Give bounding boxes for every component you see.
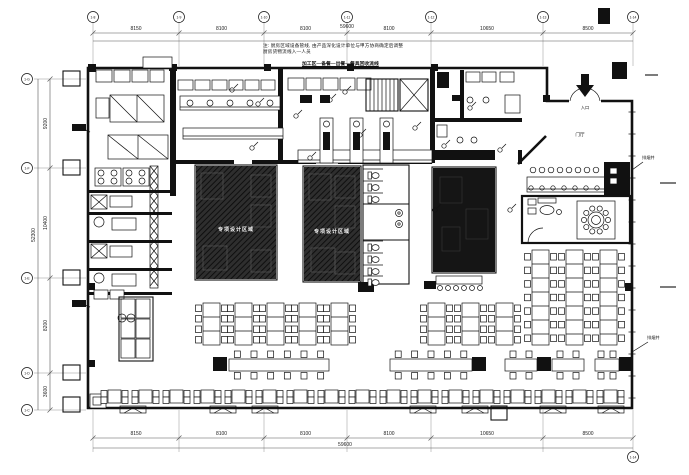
chair bbox=[234, 373, 240, 380]
chair bbox=[194, 391, 200, 398]
chair bbox=[463, 397, 469, 404]
special-room-fill bbox=[433, 168, 495, 272]
fixture-circle bbox=[467, 97, 473, 103]
equipment-box bbox=[340, 78, 355, 90]
grid-bubble-label: 1-10 bbox=[261, 15, 268, 19]
chair bbox=[566, 397, 572, 404]
chair bbox=[473, 397, 479, 404]
dining-table bbox=[267, 303, 284, 345]
square-table bbox=[480, 390, 493, 403]
dim-bottom: 8150 bbox=[130, 431, 141, 437]
chair bbox=[557, 351, 563, 358]
dim-top-total: 59600 bbox=[340, 24, 354, 30]
callout-leader bbox=[512, 204, 516, 208]
chair bbox=[421, 305, 427, 312]
chair bbox=[370, 397, 376, 404]
grid-bubble-label: 1-E bbox=[24, 276, 30, 280]
equipment-callout bbox=[468, 106, 472, 110]
chair bbox=[401, 397, 407, 404]
note-line-2: 厨房货物流线入—人员 bbox=[263, 49, 413, 55]
equipment-callout bbox=[413, 126, 417, 130]
pickup-stool bbox=[446, 286, 451, 291]
equipment-box bbox=[505, 95, 520, 113]
chair bbox=[222, 305, 228, 312]
chair bbox=[504, 397, 510, 404]
shelf-cell bbox=[121, 339, 135, 358]
equipment-box bbox=[96, 98, 109, 118]
pickup-stool bbox=[478, 286, 483, 291]
chair bbox=[481, 326, 487, 333]
chair bbox=[349, 397, 355, 404]
interior-wall bbox=[172, 160, 234, 164]
serving-counter-core bbox=[353, 132, 360, 150]
chair bbox=[412, 373, 418, 380]
dim-bottom: 8100 bbox=[300, 431, 311, 437]
dim-top: 8500 bbox=[582, 26, 593, 32]
chair bbox=[222, 337, 228, 344]
pickup-stool bbox=[462, 286, 467, 291]
chair bbox=[284, 351, 290, 358]
square-table bbox=[449, 390, 462, 403]
chair bbox=[318, 391, 324, 398]
equipment-box bbox=[288, 78, 304, 90]
grid-bubble-label: 1-8 bbox=[91, 15, 96, 19]
serving-counter-core bbox=[383, 132, 390, 150]
bar-stool bbox=[584, 167, 590, 173]
square-table bbox=[294, 390, 307, 403]
chair bbox=[349, 391, 355, 398]
grid-bubble-label: 1-D bbox=[24, 371, 30, 375]
chair bbox=[447, 305, 453, 312]
chair bbox=[228, 316, 234, 323]
chair bbox=[286, 326, 292, 333]
toilet-room bbox=[363, 165, 409, 284]
chair bbox=[598, 373, 604, 380]
dark-equipment bbox=[72, 300, 86, 307]
chair bbox=[557, 373, 563, 380]
entry-label: 入口 bbox=[581, 105, 589, 110]
round-table bbox=[588, 212, 604, 228]
bar-stool bbox=[575, 167, 581, 173]
equipment-box bbox=[96, 70, 112, 82]
table-cap bbox=[619, 357, 633, 371]
callout-leader bbox=[332, 94, 336, 98]
sofa bbox=[538, 198, 556, 203]
chair bbox=[194, 397, 200, 404]
equipment-box bbox=[482, 72, 496, 82]
chair bbox=[308, 397, 314, 404]
chair bbox=[515, 316, 521, 323]
serving-counter-core bbox=[323, 132, 330, 150]
chair bbox=[573, 373, 579, 380]
chair bbox=[559, 254, 565, 260]
chair bbox=[277, 391, 283, 398]
chair bbox=[251, 351, 257, 358]
general-note: 注: 厨房区域设备管线, 由产品深化设计单位与甲方协商确定后调整 厨房货物流线入… bbox=[263, 43, 413, 54]
floor-plan-drawing: 1-81-91-101-111-121-131-1481508100810081… bbox=[0, 0, 689, 475]
chair bbox=[525, 321, 531, 328]
grid-bubble-label: 1-12 bbox=[428, 15, 435, 19]
chair bbox=[619, 281, 625, 288]
chair bbox=[196, 337, 202, 344]
column bbox=[431, 64, 438, 71]
chair bbox=[455, 305, 461, 312]
chair bbox=[184, 391, 190, 398]
chair bbox=[494, 391, 500, 398]
chair bbox=[411, 397, 417, 404]
dim-bottom-total: 59600 bbox=[338, 442, 352, 448]
chair bbox=[525, 391, 531, 398]
bar-stool bbox=[530, 167, 536, 173]
equipment-callout bbox=[294, 114, 298, 118]
callout-leader bbox=[417, 122, 421, 126]
offset-column-box bbox=[63, 160, 80, 175]
dining-table bbox=[235, 303, 252, 345]
callout-leader bbox=[502, 144, 506, 148]
chair bbox=[585, 294, 591, 301]
chair bbox=[153, 397, 159, 404]
chair bbox=[184, 397, 190, 404]
chair bbox=[318, 397, 324, 404]
dim-left: 8200 bbox=[43, 320, 49, 331]
chair bbox=[308, 391, 314, 398]
dim-left-total: 52300 bbox=[31, 228, 37, 242]
sink-drain bbox=[398, 212, 400, 214]
chair bbox=[585, 267, 591, 274]
chair bbox=[350, 326, 356, 333]
room-label-special-b: 专项设计区域 bbox=[303, 228, 361, 235]
chair bbox=[324, 337, 330, 344]
chair bbox=[463, 391, 469, 398]
leader-line bbox=[632, 342, 648, 352]
shelf-cell bbox=[136, 339, 150, 358]
chair bbox=[163, 397, 169, 404]
chair bbox=[585, 254, 591, 260]
bar-stool bbox=[557, 167, 563, 173]
equipment-box bbox=[110, 246, 132, 257]
square-table bbox=[201, 390, 214, 403]
counter bbox=[298, 150, 432, 163]
chair bbox=[535, 391, 541, 398]
equipment-box bbox=[212, 80, 227, 90]
chair bbox=[525, 267, 531, 274]
toilet-bowl bbox=[372, 173, 379, 179]
equipment-box bbox=[323, 78, 338, 90]
round-table-chair bbox=[590, 206, 595, 211]
chair bbox=[122, 397, 128, 404]
chair bbox=[228, 337, 234, 344]
chair bbox=[455, 337, 461, 344]
grid-bubble-label: 1-9 bbox=[177, 15, 182, 19]
round-table-chair bbox=[603, 210, 608, 215]
callout-leader bbox=[472, 102, 476, 106]
dark-equipment bbox=[433, 150, 495, 160]
chair bbox=[292, 337, 298, 344]
dim-bottom: 10650 bbox=[480, 431, 494, 437]
chair bbox=[447, 337, 453, 344]
grid-bubble-label: 1-13 bbox=[540, 15, 547, 19]
chair bbox=[101, 391, 107, 398]
equipment-box bbox=[114, 70, 130, 82]
chair bbox=[287, 391, 293, 398]
equipment-box bbox=[229, 80, 243, 90]
chair bbox=[619, 294, 625, 301]
room-label-entrance-hall: 门厅 bbox=[558, 132, 602, 138]
chair bbox=[525, 294, 531, 301]
square-table bbox=[170, 390, 183, 403]
chair bbox=[566, 391, 572, 398]
chair bbox=[254, 305, 260, 312]
chair bbox=[559, 308, 565, 315]
sink bbox=[396, 221, 403, 228]
chair bbox=[163, 391, 169, 398]
offset-column-box bbox=[63, 71, 80, 86]
chair bbox=[597, 391, 603, 398]
fixture-circle bbox=[457, 137, 463, 143]
chair bbox=[481, 316, 487, 323]
shelf-cell bbox=[136, 299, 150, 318]
chair bbox=[573, 351, 579, 358]
chair bbox=[286, 305, 292, 312]
equipment-box bbox=[195, 80, 210, 90]
chair bbox=[587, 391, 593, 398]
chair bbox=[215, 391, 221, 398]
interior-wall bbox=[170, 68, 176, 196]
dark-equipment bbox=[437, 72, 449, 88]
column bbox=[543, 95, 550, 102]
column bbox=[88, 64, 96, 72]
dim-top: 8100 bbox=[383, 26, 394, 32]
chair bbox=[593, 294, 599, 301]
equipment-box bbox=[466, 72, 480, 82]
chair bbox=[619, 308, 625, 315]
table-cap bbox=[213, 357, 227, 371]
equipment-box bbox=[112, 218, 136, 230]
chair bbox=[132, 391, 138, 398]
chair bbox=[455, 326, 461, 333]
chair bbox=[215, 397, 221, 404]
chair bbox=[619, 254, 625, 260]
equipment-box bbox=[132, 70, 148, 82]
dining-table bbox=[462, 303, 479, 345]
chair bbox=[551, 281, 557, 288]
chair bbox=[339, 397, 345, 404]
dim-left: 10400 bbox=[43, 216, 49, 230]
chair bbox=[556, 391, 562, 398]
toilet-bowl bbox=[372, 185, 379, 191]
dim-top: 8100 bbox=[216, 26, 227, 32]
callout-leader bbox=[446, 140, 450, 144]
chair bbox=[318, 337, 324, 344]
chair bbox=[461, 351, 467, 358]
grid-bubble-label: 1-14 bbox=[630, 15, 637, 19]
callout-leader bbox=[298, 110, 302, 114]
chair bbox=[455, 316, 461, 323]
chair bbox=[556, 397, 562, 404]
toilet bbox=[368, 196, 372, 203]
diagonal-wall bbox=[518, 136, 546, 164]
fixture-circle bbox=[94, 217, 104, 227]
toilet bbox=[368, 244, 372, 251]
chair bbox=[619, 321, 625, 328]
table-cap bbox=[537, 357, 551, 371]
dim-top: 8100 bbox=[300, 26, 311, 32]
side-table bbox=[557, 210, 562, 215]
chair bbox=[619, 335, 625, 342]
chair bbox=[489, 305, 495, 312]
chair bbox=[559, 294, 565, 301]
chair bbox=[559, 281, 565, 288]
chair bbox=[339, 391, 345, 398]
sink-drain bbox=[398, 223, 400, 225]
square-table bbox=[387, 390, 400, 403]
toilet bbox=[368, 279, 372, 286]
round-table-chair bbox=[584, 224, 589, 229]
column bbox=[264, 64, 271, 71]
equipment-box bbox=[178, 80, 193, 90]
interior-wall bbox=[88, 212, 172, 215]
chair bbox=[551, 294, 557, 301]
interior-wall bbox=[430, 118, 522, 122]
dim-top: 10650 bbox=[480, 26, 494, 32]
fixture-circle bbox=[94, 273, 104, 283]
toilet bbox=[368, 184, 372, 191]
grid-bubble-label: 1-C bbox=[24, 408, 30, 412]
round-table-chair bbox=[584, 210, 589, 215]
pickup-stool bbox=[454, 286, 459, 291]
equipment-box bbox=[245, 80, 259, 90]
chair bbox=[350, 305, 356, 312]
chair bbox=[286, 316, 292, 323]
chair bbox=[551, 308, 557, 315]
equipment-callout bbox=[343, 90, 347, 94]
annotation-right-upper: 排烟井 bbox=[642, 154, 655, 161]
chair bbox=[301, 373, 307, 380]
toilet-bowl bbox=[372, 197, 379, 203]
chair bbox=[287, 397, 293, 404]
chair bbox=[411, 391, 417, 398]
chair bbox=[122, 391, 128, 398]
equipment-box bbox=[112, 274, 136, 286]
chair bbox=[461, 373, 467, 380]
chair bbox=[442, 397, 448, 404]
chair bbox=[421, 337, 427, 344]
equipment-callout bbox=[508, 208, 512, 212]
chair bbox=[526, 351, 532, 358]
chair bbox=[380, 397, 386, 404]
toilet-bowl bbox=[372, 245, 379, 251]
chair bbox=[504, 391, 510, 398]
chair bbox=[593, 321, 599, 328]
chair bbox=[587, 397, 593, 404]
chair bbox=[559, 335, 565, 342]
armchair bbox=[528, 208, 536, 214]
equipment-callout bbox=[250, 146, 254, 150]
chair bbox=[286, 337, 292, 344]
grid-bubble-label: 1-G bbox=[24, 77, 30, 81]
callout-leader bbox=[254, 142, 258, 146]
toilet bbox=[368, 256, 372, 263]
chair bbox=[256, 397, 262, 404]
toilet bbox=[368, 268, 372, 275]
chair bbox=[610, 373, 616, 380]
chair bbox=[585, 308, 591, 315]
chair bbox=[268, 351, 274, 358]
counter bbox=[527, 177, 607, 192]
interior-wall bbox=[88, 240, 172, 243]
inset bbox=[610, 168, 617, 174]
chair bbox=[260, 305, 266, 312]
long-table bbox=[552, 359, 584, 371]
square-table bbox=[356, 390, 369, 403]
equipment-box bbox=[93, 397, 101, 405]
chair bbox=[525, 335, 531, 342]
chair bbox=[318, 305, 324, 312]
chair bbox=[593, 254, 599, 260]
square-table bbox=[542, 390, 555, 403]
long-table bbox=[505, 359, 537, 371]
chair bbox=[395, 373, 401, 380]
chair bbox=[318, 373, 324, 380]
chair bbox=[489, 326, 495, 333]
bar-stool bbox=[566, 167, 572, 173]
chair bbox=[301, 351, 307, 358]
chair bbox=[254, 316, 260, 323]
chair bbox=[489, 316, 495, 323]
chair bbox=[551, 321, 557, 328]
chair bbox=[515, 337, 521, 344]
square-table bbox=[604, 390, 617, 403]
square-table bbox=[511, 390, 524, 403]
equipment-callout bbox=[442, 144, 446, 148]
entry-arrow bbox=[576, 74, 594, 97]
round-table-chair bbox=[605, 217, 610, 222]
equipment-box bbox=[150, 70, 164, 82]
dim-bottom: 8100 bbox=[383, 431, 394, 437]
chair bbox=[598, 351, 604, 358]
round-table-chair bbox=[597, 229, 602, 234]
square-table bbox=[573, 390, 586, 403]
interior-wall bbox=[88, 268, 172, 271]
chair bbox=[196, 326, 202, 333]
chair bbox=[324, 305, 330, 312]
chair bbox=[132, 397, 138, 404]
chair bbox=[432, 397, 438, 404]
dark-equipment bbox=[452, 95, 462, 101]
dining-table bbox=[331, 303, 348, 345]
chair bbox=[593, 335, 599, 342]
leader-line bbox=[632, 162, 643, 170]
chair bbox=[525, 308, 531, 315]
offset-column-box bbox=[63, 270, 80, 285]
chair bbox=[585, 335, 591, 342]
equipment-box bbox=[357, 78, 371, 90]
chair bbox=[284, 373, 290, 380]
chair bbox=[234, 351, 240, 358]
chair bbox=[515, 326, 521, 333]
chair bbox=[246, 391, 252, 398]
chair bbox=[350, 337, 356, 344]
pickup-counter bbox=[436, 276, 482, 284]
chair bbox=[260, 337, 266, 344]
chair bbox=[350, 316, 356, 323]
grid-bubble-label: 1-F bbox=[24, 166, 29, 170]
armchair bbox=[528, 199, 536, 205]
sink bbox=[396, 210, 403, 217]
vip-door-arc bbox=[528, 228, 543, 243]
chair bbox=[260, 316, 266, 323]
chair bbox=[525, 281, 531, 288]
